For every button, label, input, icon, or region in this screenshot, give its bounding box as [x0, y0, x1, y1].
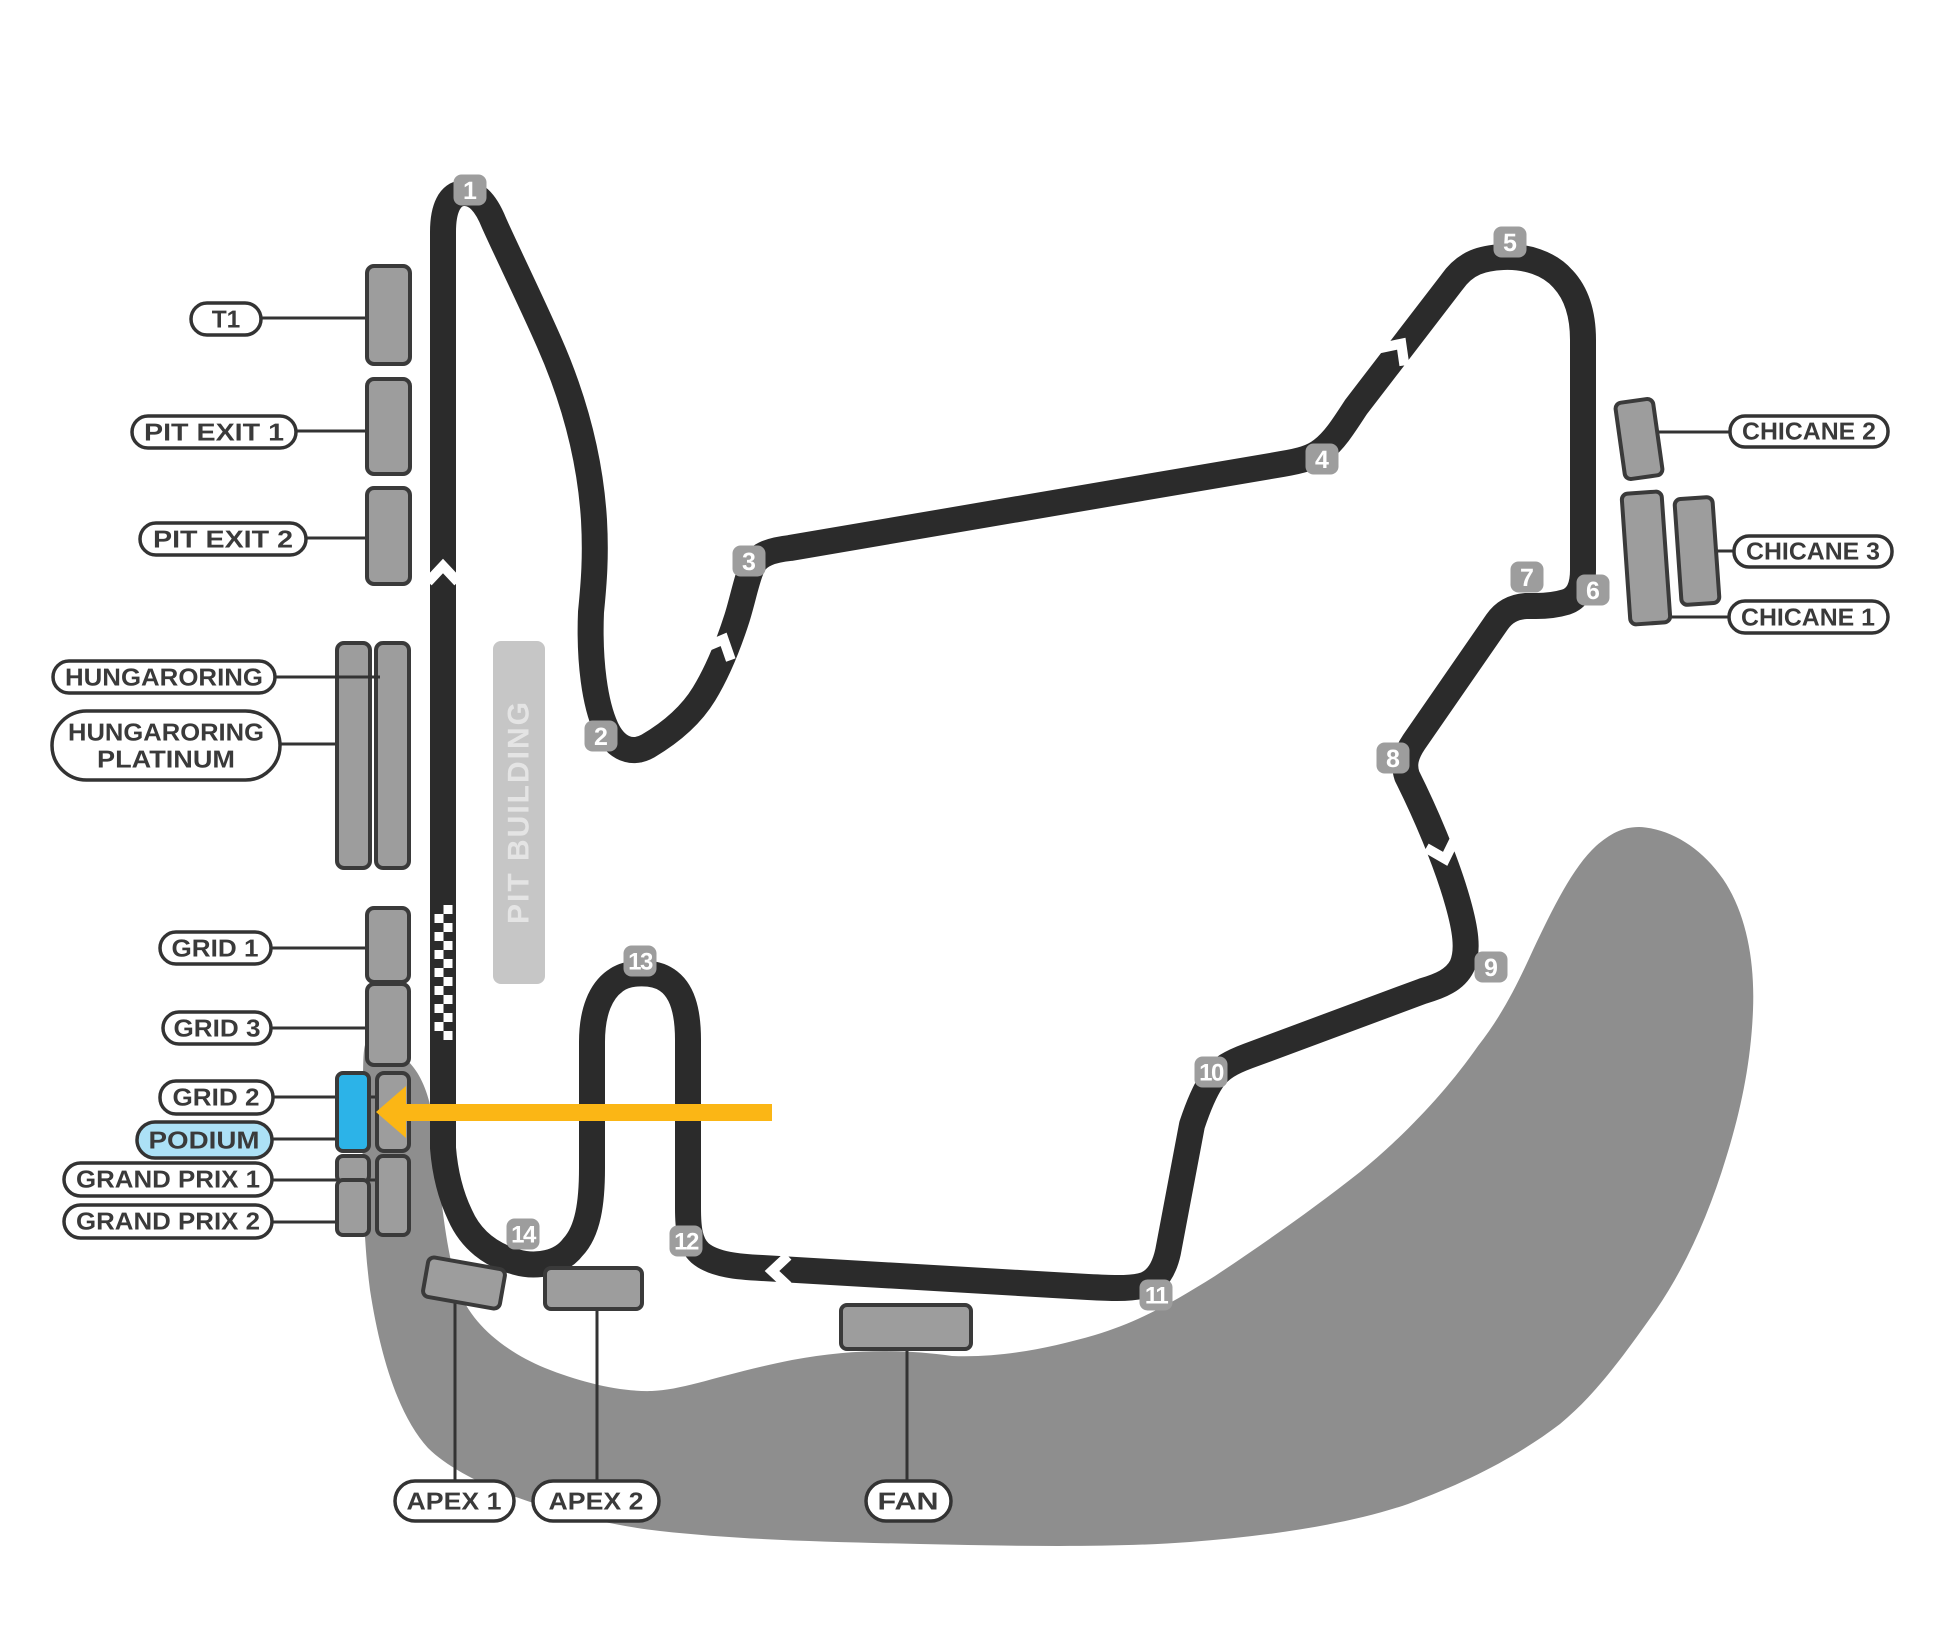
- svg-text:PODIUM: PODIUM: [149, 1128, 260, 1155]
- svg-text:11: 11: [1145, 1283, 1169, 1310]
- svg-text:14: 14: [511, 1222, 537, 1249]
- svg-text:T1: T1: [212, 307, 241, 334]
- svg-text:GRAND PRIX 1: GRAND PRIX 1: [76, 1167, 260, 1194]
- svg-text:6: 6: [1586, 577, 1600, 605]
- svg-text:7: 7: [1520, 564, 1534, 592]
- svg-text:5: 5: [1503, 229, 1517, 257]
- svg-text:APEX 1: APEX 1: [407, 1489, 502, 1516]
- svg-text:CHICANE 1: CHICANE 1: [1741, 605, 1875, 632]
- svg-text:12: 12: [674, 1229, 699, 1256]
- svg-text:1: 1: [463, 177, 477, 205]
- svg-text:APEX 2: APEX 2: [549, 1489, 644, 1516]
- svg-text:8: 8: [1386, 745, 1400, 773]
- svg-text:PIT EXIT 2: PIT EXIT 2: [153, 527, 293, 554]
- svg-text:CHICANE 3: CHICANE 3: [1746, 539, 1880, 566]
- svg-text:2: 2: [594, 723, 608, 751]
- svg-text:GRID 2: GRID 2: [173, 1085, 260, 1112]
- svg-text:GRID 3: GRID 3: [174, 1016, 261, 1043]
- svg-text:FAN: FAN: [878, 1489, 939, 1516]
- svg-text:CHICANE 2: CHICANE 2: [1742, 419, 1876, 446]
- svg-text:9: 9: [1484, 954, 1498, 982]
- svg-text:PLATINUM: PLATINUM: [97, 747, 235, 774]
- svg-text:13: 13: [628, 949, 653, 976]
- svg-text:HUNGARORING: HUNGARORING: [68, 720, 264, 747]
- svg-text:10: 10: [1199, 1060, 1224, 1087]
- svg-text:HUNGARORING: HUNGARORING: [65, 665, 263, 692]
- svg-text:4: 4: [1315, 446, 1329, 474]
- svg-text:PIT EXIT 1: PIT EXIT 1: [144, 420, 284, 447]
- svg-text:GRAND PRIX 2: GRAND PRIX 2: [76, 1209, 260, 1236]
- svg-text:PIT BUILDING: PIT BUILDING: [503, 700, 536, 924]
- svg-text:3: 3: [742, 548, 756, 576]
- svg-text:GRID 1: GRID 1: [172, 936, 259, 963]
